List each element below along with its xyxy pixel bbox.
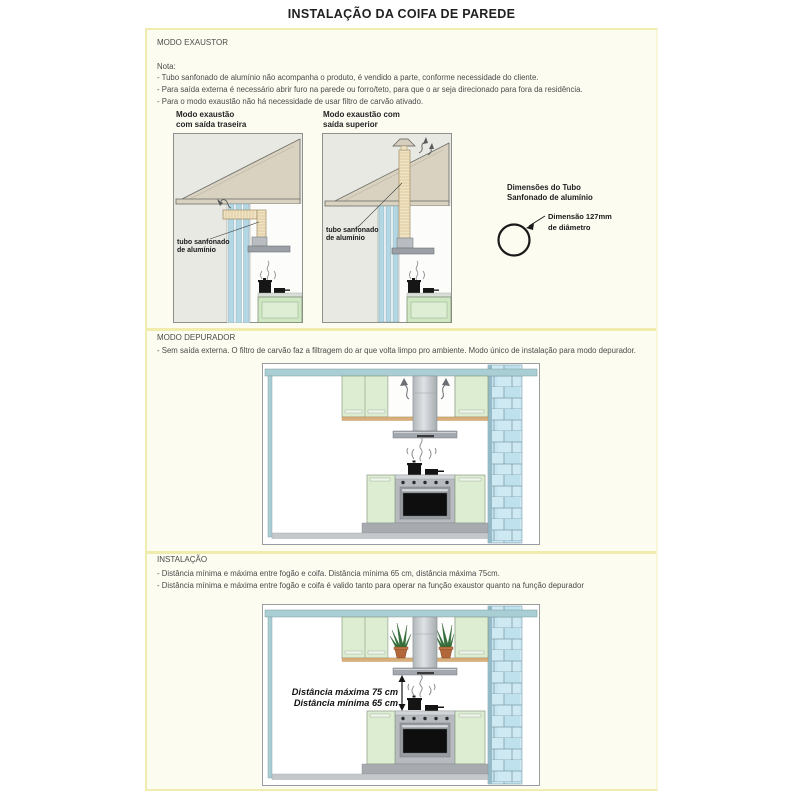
note-line: - Distância mínima e máxima entre fogão … — [157, 569, 500, 578]
diagram-rear-exit-illustration: tubo sanfonado de alumínio — [173, 133, 303, 323]
left-wall — [268, 376, 272, 537]
aluminium-duct — [399, 150, 410, 238]
kitchen-depurador-illustration — [262, 363, 540, 545]
pointer-arrow — [529, 216, 545, 226]
brick-wall — [488, 606, 522, 784]
note-line: - Para saída externa é necessário abrir … — [157, 85, 583, 94]
distance-max-label: Distância máxima 75 cm — [292, 687, 398, 697]
note-line: - Para o modo exaustão não há necessidad… — [157, 97, 423, 106]
plinth — [362, 523, 488, 533]
document-panel: MODO EXAUSTOR Nota: - Tubo sanfonado de … — [145, 28, 658, 791]
floor — [272, 774, 488, 780]
tube-diameter-circle — [499, 225, 530, 256]
note-line: - Distância mínima e máxima entre fogão … — [157, 581, 584, 590]
range-oven — [395, 475, 455, 523]
left-wall — [268, 617, 272, 778]
range-oven — [395, 711, 455, 764]
tube-label-line2: de alumínio — [177, 247, 216, 254]
section-header-exaustor: MODO EXAUSTOR — [157, 38, 228, 47]
note-line: - Tubo sanfonado de alumínio não acompan… — [157, 73, 538, 82]
brick-wall — [488, 365, 522, 543]
manual-page: INSTALAÇÃO DA COIFA DE PAREDE MODO EXAUS… — [0, 0, 800, 800]
plinth — [362, 764, 488, 774]
section-header-instalacao: INSTALAÇÃO — [157, 555, 207, 564]
note-line: - Sem saída externa. O filtro de carvão … — [157, 346, 636, 355]
nota-label: Nota: — [157, 62, 176, 71]
page-title: INSTALAÇÃO DA COIFA DE PAREDE — [145, 7, 658, 21]
section-divider — [147, 551, 656, 554]
ceiling — [265, 369, 537, 376]
tube-label-line2: de alumínio — [326, 235, 365, 242]
section-header-depurador: MODO DEPURADOR — [157, 333, 235, 342]
diagram-rear-title: Modo exaustão com saída traseira — [176, 110, 246, 129]
tube-diameter-figure: Dimensão 127mm de diâmetro — [495, 196, 635, 258]
diameter-value-line2: de diâmetro — [548, 223, 591, 232]
section-divider — [147, 328, 656, 331]
diameter-value-line1: Dimensão 127mm — [548, 212, 612, 221]
cooktop-cabinet — [258, 293, 302, 323]
tube-label-line1: tubo sanfonado — [177, 239, 230, 246]
pointer-arrowhead — [526, 223, 534, 230]
distance-min-label: Distância mínima 65 cm — [294, 698, 398, 708]
ceiling — [265, 610, 537, 617]
exterior-wall-siding — [378, 206, 399, 322]
diagram-top-exit-illustration: tubo sanfonado de alumínio — [322, 133, 452, 323]
tube-label-line1: tubo sanfonado — [326, 227, 379, 234]
kitchen-distance-illustration: Distância máxima 75 cm Distância mínima … — [262, 604, 540, 786]
diagram-superior-title: Modo exaustão com saída superior — [323, 110, 400, 129]
cooktop-cabinet — [407, 293, 451, 323]
exterior-wall-siding — [227, 204, 250, 323]
floor — [272, 533, 488, 539]
